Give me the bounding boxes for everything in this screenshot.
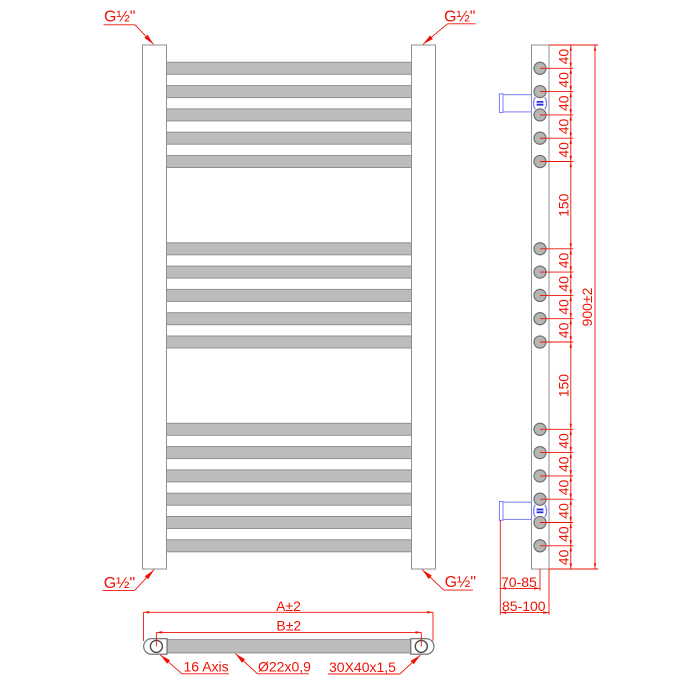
svg-text:40: 40: [556, 503, 572, 519]
svg-text:B±2: B±2: [276, 618, 301, 634]
svg-text:150: 150: [556, 374, 572, 398]
svg-text:900±2: 900±2: [579, 287, 595, 326]
svg-text:G½": G½": [104, 575, 135, 592]
svg-text:G½": G½": [444, 9, 475, 26]
svg-text:70-85: 70-85: [501, 574, 537, 590]
svg-text:40: 40: [556, 322, 572, 338]
svg-text:A±2: A±2: [276, 598, 301, 614]
svg-text:Ø22x0,9: Ø22x0,9: [258, 659, 311, 675]
svg-text:40: 40: [556, 526, 572, 542]
svg-text:40: 40: [556, 142, 572, 158]
svg-text:40: 40: [556, 276, 572, 292]
svg-text:30X40x1,5: 30X40x1,5: [329, 659, 396, 675]
svg-text:40: 40: [556, 299, 572, 315]
svg-text:40: 40: [556, 480, 572, 496]
svg-text:85-100: 85-100: [502, 598, 546, 614]
svg-text:16 Axis: 16 Axis: [184, 659, 229, 675]
svg-text:40: 40: [556, 456, 572, 472]
svg-text:40: 40: [556, 72, 572, 88]
svg-text:40: 40: [556, 95, 572, 111]
svg-text:G½": G½": [445, 574, 476, 591]
svg-text:40: 40: [556, 549, 572, 565]
svg-text:40: 40: [556, 49, 572, 65]
svg-text:40: 40: [556, 433, 572, 449]
svg-text:G½": G½": [104, 9, 135, 26]
svg-text:150: 150: [556, 193, 572, 217]
svg-text:40: 40: [556, 253, 572, 269]
svg-text:40: 40: [556, 119, 572, 135]
